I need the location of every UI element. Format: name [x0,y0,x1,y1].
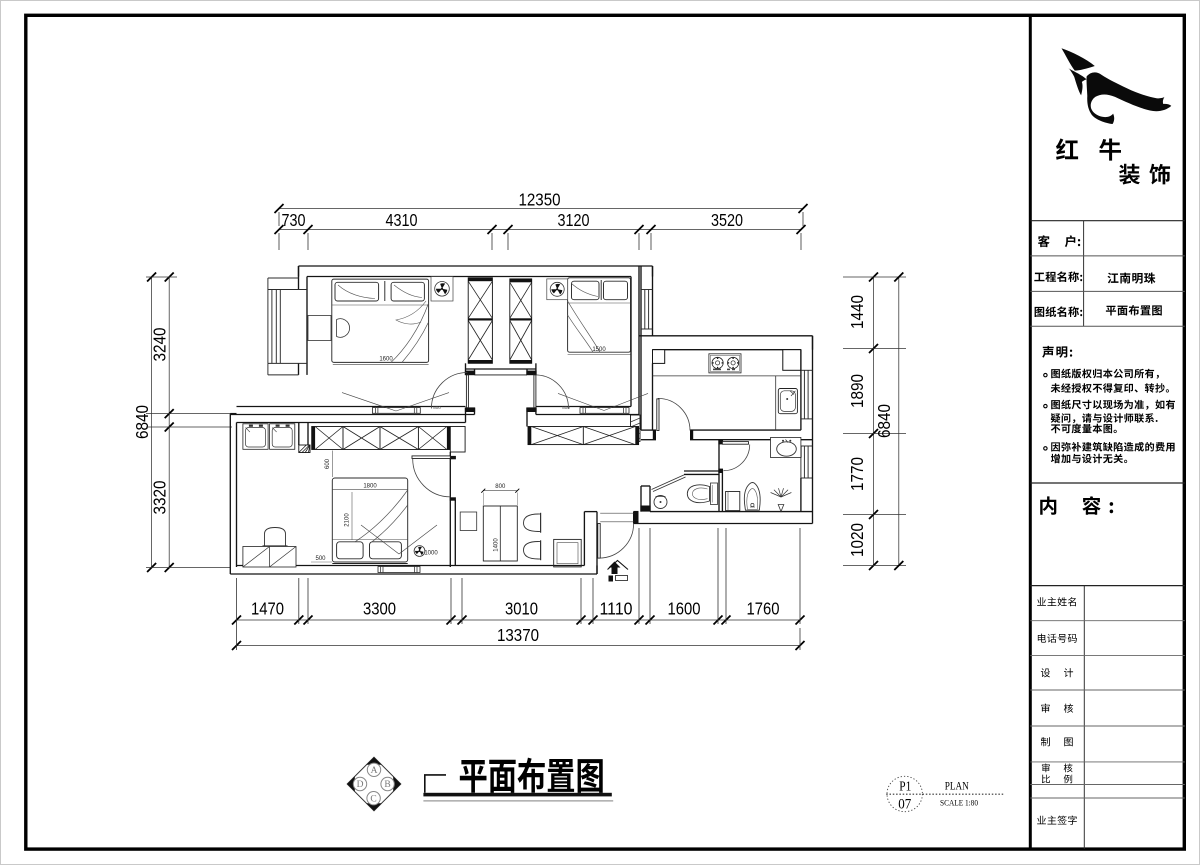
svg-text:500: 500 [315,556,326,562]
svg-text:PLAN: PLAN [945,778,969,792]
svg-text:B: B [384,780,390,790]
svg-text:1000: 1000 [424,551,438,557]
svg-text:800: 800 [433,405,441,410]
svg-text:1800: 1800 [363,484,377,490]
svg-text:1110: 1110 [600,599,633,619]
svg-text:730: 730 [282,210,306,230]
svg-text:3120: 3120 [558,210,590,230]
svg-text:600: 600 [325,458,331,469]
svg-text:07: 07 [898,796,911,812]
svg-text:P1: P1 [899,778,911,793]
svg-text:1020: 1020 [847,523,867,557]
svg-text:A: A [371,766,378,776]
svg-text:3520: 3520 [711,210,743,230]
svg-text:1440: 1440 [847,295,867,329]
svg-text:1890: 1890 [847,374,867,408]
svg-text:4310: 4310 [386,210,418,230]
svg-text:1500: 1500 [592,347,606,353]
svg-text:1770: 1770 [847,457,867,491]
svg-text:2100: 2100 [345,513,351,527]
svg-text:1760: 1760 [747,599,780,619]
svg-text:6840: 6840 [132,405,152,439]
svg-text:1600: 1600 [379,357,393,363]
svg-text:3240: 3240 [150,328,170,362]
svg-text:3300: 3300 [363,599,396,619]
svg-text:6840: 6840 [874,404,894,438]
svg-text:C: C [370,794,376,804]
svg-text:1470: 1470 [251,599,284,619]
svg-text:800: 800 [562,405,570,410]
svg-text:SCALE 1:80: SCALE 1:80 [940,797,978,807]
svg-text:1600: 1600 [668,599,701,619]
svg-text:1400: 1400 [494,538,500,552]
svg-text:3320: 3320 [150,481,170,515]
svg-text:13370: 13370 [497,625,539,645]
svg-text:3010: 3010 [505,599,538,619]
svg-text:12350: 12350 [519,190,561,210]
svg-text:D: D [357,780,364,790]
svg-text:800: 800 [495,484,506,490]
